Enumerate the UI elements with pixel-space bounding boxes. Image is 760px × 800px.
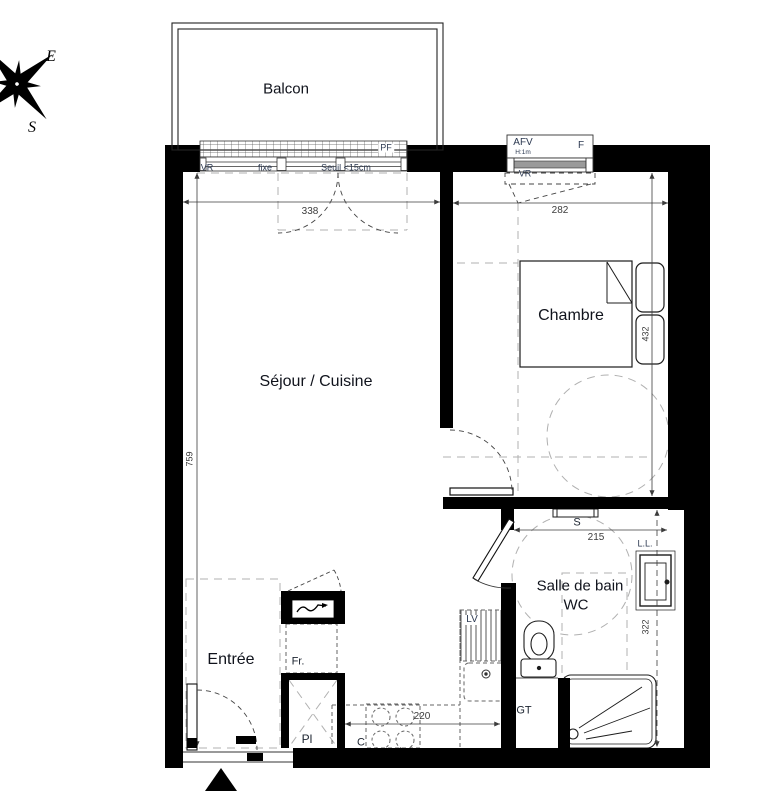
dim-bedroom-depth: 432 [642,326,651,341]
french-window-label: PF [378,144,394,153]
living-window [200,141,407,171]
technical-duct-label: GT [516,706,531,717]
fridge-label: Fr. [292,657,305,668]
entrance-door [183,684,293,762]
dim-living-width: 338 [302,207,319,217]
washing-machine [636,551,675,610]
dim-bathroom-width: 215 [588,533,605,543]
electrical-panel [281,570,345,624]
compass-east-label: E [46,49,56,65]
dim-bathroom-depth: 322 [642,619,651,634]
entrance-arrow [205,768,237,791]
dim-living-depth: 759 [186,451,195,466]
shutter-label-bedroom: VR [519,170,532,179]
living-label: Séjour / Cuisine [260,374,373,390]
closet-label: Pl [302,733,313,745]
floor-plan-drawing [0,0,760,800]
entrance-label: Entrée [207,652,254,668]
bathroom-label-line2: WC [564,598,589,613]
nightstands [636,263,664,364]
afv-window-label: AFV [513,138,532,148]
dim-kitchen-counter: 220 [414,712,431,722]
guide-dashes [186,173,669,748]
compass-rose-icon [0,19,82,149]
bathroom-label-line1: Salle de bain [537,579,624,594]
afv-height-label: H:1m [515,150,531,157]
threshold-label: Seuil <15cm [321,164,371,173]
shower [562,675,656,748]
living-window-swing [278,173,398,233]
cooktop-label: C [357,738,365,749]
bedroom-door [450,430,513,495]
shutter-label-living: VR [201,164,214,173]
dim-bedroom-width: 282 [552,206,569,216]
dimension-lines [183,173,668,747]
towel-rail-label: S [573,518,580,529]
window-f-label: F [578,141,584,151]
washing-machine-label: L.L. [637,540,652,549]
toilet [521,621,556,677]
floor-plan: Balcon VR fixe Seuil <15cm PF 338 AFV H:… [0,0,760,800]
bathroom-door [473,519,514,588]
fixed-pane-label: fixe [258,164,272,173]
bedroom-label: Chambre [538,308,604,324]
balcony-label: Balcon [263,82,309,97]
dishwasher-label: LV [464,615,480,625]
compass-south-label: S [28,120,36,136]
